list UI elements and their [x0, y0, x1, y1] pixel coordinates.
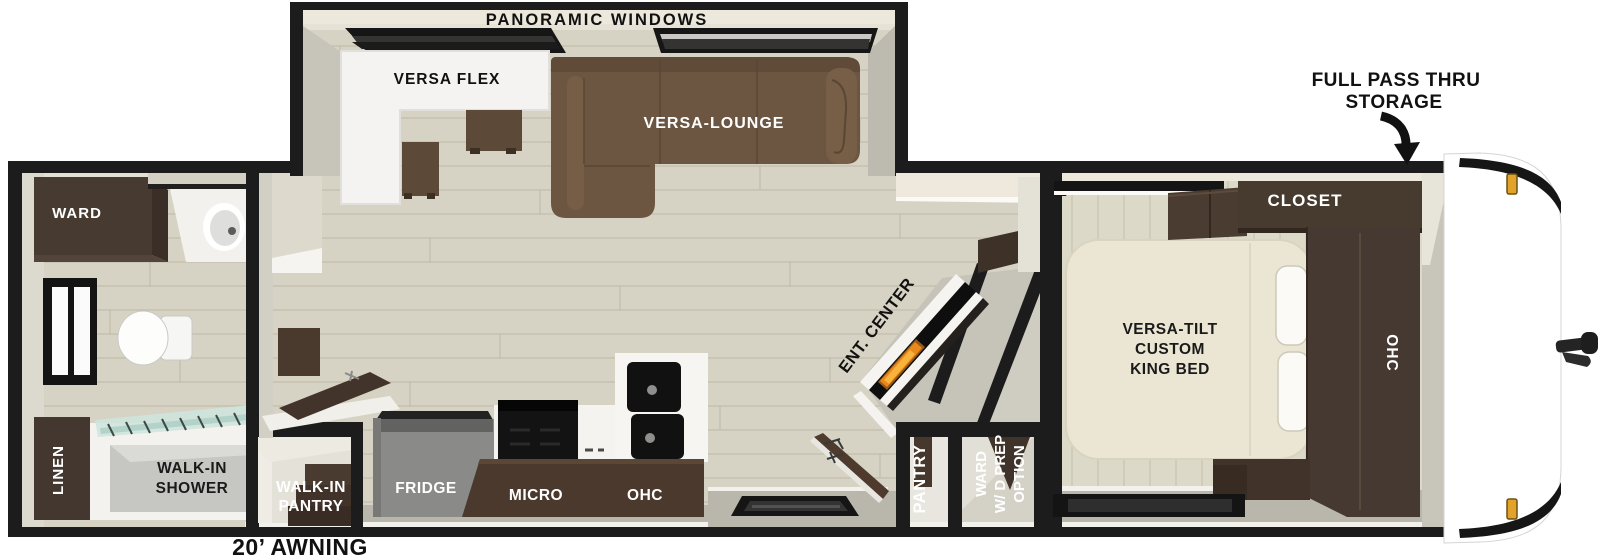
- svg-text:VERSA-LOUNGE: VERSA-LOUNGE: [644, 115, 785, 132]
- svg-text:MICRO: MICRO: [509, 487, 563, 504]
- svg-text:LINEN: LINEN: [50, 445, 67, 495]
- svg-text:SHOWER: SHOWER: [156, 480, 229, 497]
- svg-text:STORAGE: STORAGE: [1345, 92, 1442, 113]
- svg-text:PANTRY: PANTRY: [911, 445, 929, 514]
- svg-text:VERSA FLEX: VERSA FLEX: [394, 71, 501, 88]
- svg-text:W/ D PREP: W/ D PREP: [992, 435, 1009, 513]
- svg-text:CUSTOM: CUSTOM: [1135, 341, 1205, 358]
- svg-text:WALK-IN: WALK-IN: [276, 479, 346, 496]
- svg-text:OHC: OHC: [1383, 334, 1400, 371]
- svg-text:FULL PASS THRU: FULL PASS THRU: [1312, 70, 1481, 91]
- svg-text:CLOSET: CLOSET: [1268, 191, 1343, 210]
- svg-text:OPTION: OPTION: [1011, 445, 1028, 503]
- svg-text:WARD: WARD: [52, 205, 102, 222]
- svg-text:PANTRY: PANTRY: [279, 498, 344, 515]
- svg-text:VERSA-TILT: VERSA-TILT: [1122, 321, 1217, 338]
- svg-text:WARD: WARD: [973, 451, 990, 497]
- svg-text:PANORAMIC WINDOWS: PANORAMIC WINDOWS: [486, 11, 709, 29]
- svg-text:20’ AWNING: 20’ AWNING: [232, 534, 368, 557]
- svg-text:KING BED: KING BED: [1130, 361, 1210, 378]
- svg-text:WALK-IN: WALK-IN: [157, 460, 227, 477]
- svg-text:OHC: OHC: [627, 487, 663, 504]
- svg-text:FRIDGE: FRIDGE: [395, 480, 457, 497]
